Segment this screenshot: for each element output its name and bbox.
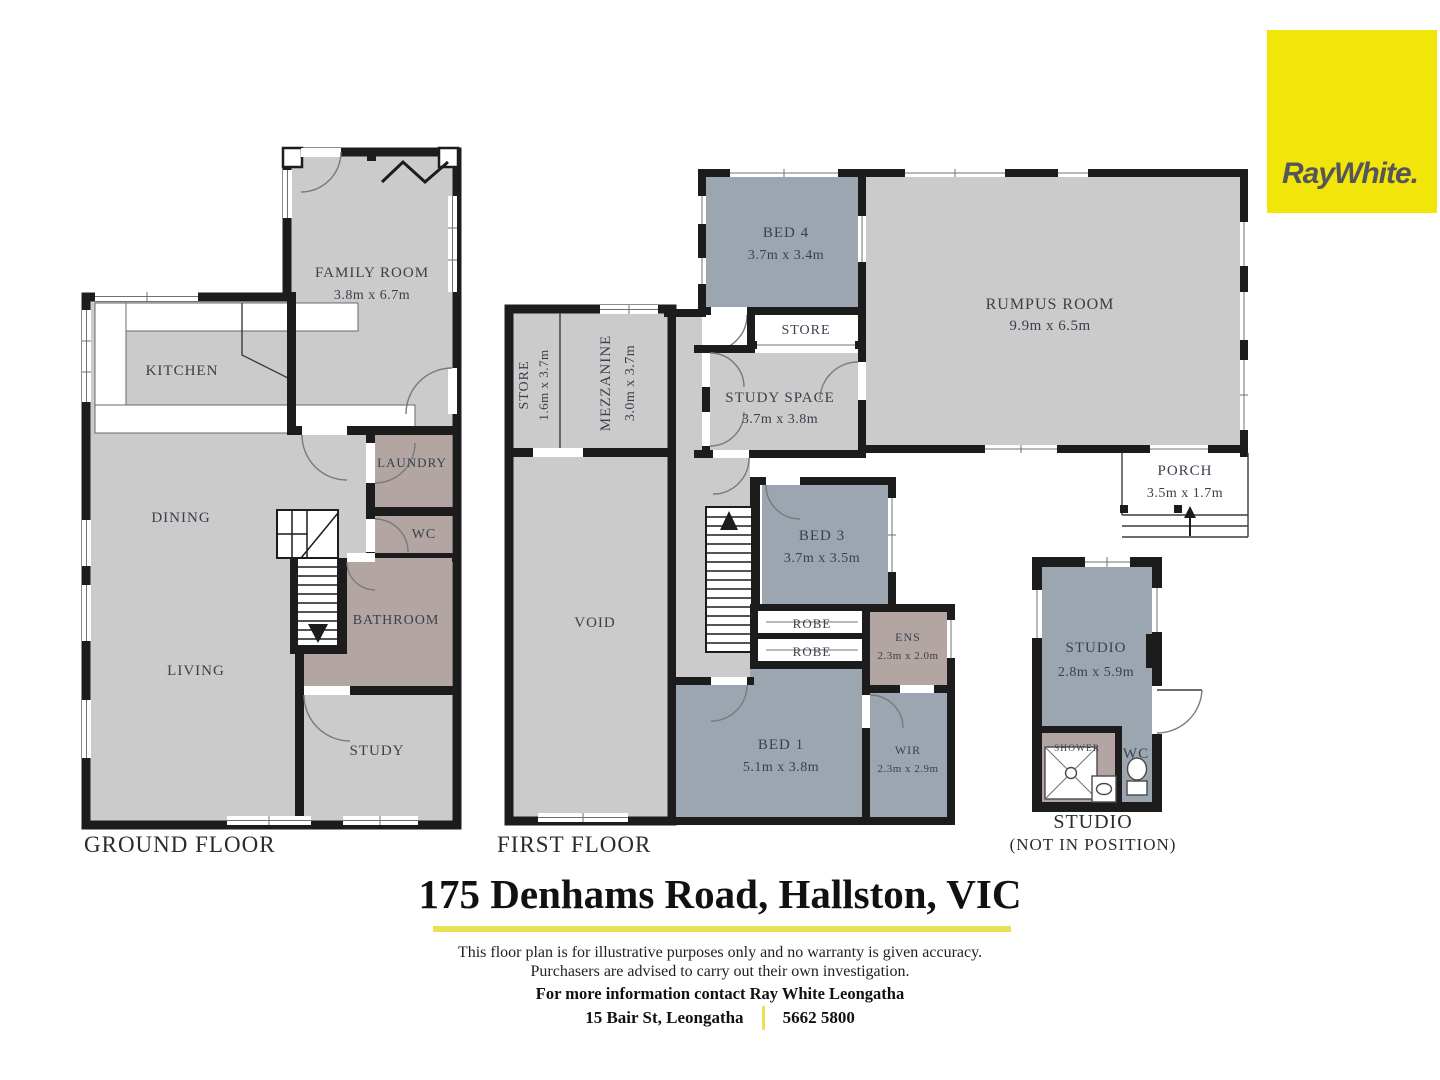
- label-robe2: ROBE: [793, 644, 832, 659]
- label-wir: WIR: [895, 743, 921, 757]
- label-family-room: FAMILY ROOM: [315, 265, 429, 281]
- label-studio-wc: WC: [1123, 746, 1149, 762]
- dims-wir: 2.3m x 2.9m: [877, 763, 938, 775]
- studio-caption-line2: (NOT IN POSITION): [1010, 835, 1177, 854]
- dims-bed3: 3.7m x 3.5m: [784, 551, 860, 566]
- dims-family-room: 3.8m x 6.7m: [334, 288, 410, 303]
- label-living: LIVING: [167, 663, 225, 679]
- address-title: 175 Denhams Road, Hallston, VIC: [0, 870, 1440, 918]
- dims-store-tall: 1.6m x 3.7m: [536, 349, 551, 420]
- porch-entry-arrow-icon: [1184, 506, 1196, 518]
- dims-ens: 2.3m x 2.0m: [877, 650, 938, 662]
- contact-line: For more information contact Ray White L…: [0, 984, 1440, 1004]
- contact-divider: [762, 1006, 765, 1030]
- dims-mezzanine: 3.0m x 3.7m: [623, 345, 638, 421]
- label-store-tall: STORE: [517, 360, 532, 409]
- label-bed1: BED 1: [758, 737, 804, 753]
- title-underline: [433, 926, 1011, 932]
- raywhite-logo-text: RayWhite.: [1282, 157, 1418, 191]
- label-kitchen: KITCHEN: [146, 363, 219, 379]
- ground-floor-plan: KITCHEN FAMILY ROOM 3.8m x 6.7m LAUNDRY …: [82, 148, 458, 857]
- staircase-up: [706, 507, 752, 652]
- floorplan-page: KITCHEN FAMILY ROOM 3.8m x 6.7m LAUNDRY …: [0, 0, 1440, 1080]
- label-wc: WC: [412, 527, 437, 542]
- dims-study-space: 3.7m x 3.8m: [742, 412, 818, 427]
- floorplan-drawing: KITCHEN FAMILY ROOM 3.8m x 6.7m LAUNDRY …: [0, 0, 1440, 1080]
- room-laundry: [374, 435, 452, 510]
- door-arc: [1157, 690, 1202, 733]
- post-icon: [439, 148, 458, 167]
- ground-floor-title: GROUND FLOOR: [84, 832, 276, 857]
- label-robe1: ROBE: [793, 616, 832, 631]
- label-ens: ENS: [895, 630, 921, 644]
- dims-studio: 2.8m x 5.9m: [1058, 665, 1134, 680]
- label-laundry: LAUNDRY: [377, 455, 447, 470]
- disclaimer-line1: This floor plan is for illustrative purp…: [0, 944, 1440, 962]
- label-store: STORE: [781, 323, 830, 338]
- dims-bed1: 5.1m x 3.8m: [743, 760, 819, 775]
- label-porch: PORCH: [1157, 463, 1212, 479]
- room-ens: [870, 612, 947, 685]
- label-rumpus: RUMPUS ROOM: [986, 296, 1115, 313]
- label-bed4: BED 4: [763, 225, 809, 241]
- office-contact-row: 15 Bair St, Leongatha 5662 5800: [0, 1006, 1440, 1030]
- dims-bed4: 3.7m x 3.4m: [748, 248, 824, 263]
- sink-icon: [1092, 776, 1116, 802]
- label-dining: DINING: [151, 510, 210, 526]
- label-bed3: BED 3: [799, 528, 845, 544]
- raywhite-logo: RayWhite.: [1267, 30, 1437, 213]
- disclaimer-line2: Purchasers are advised to carry out thei…: [0, 963, 1440, 981]
- post-icon: [283, 148, 302, 167]
- dims-porch: 3.5m x 1.7m: [1147, 486, 1223, 501]
- label-studio: STUDIO: [1066, 640, 1127, 656]
- shower-tray-icon: [1045, 747, 1097, 799]
- label-bathroom: BATHROOM: [353, 613, 440, 628]
- room-bed3: [762, 485, 888, 604]
- label-shower: SHOWER: [1054, 744, 1100, 754]
- office-phone: 5662 5800: [783, 1008, 855, 1028]
- label-study: STUDY: [349, 743, 404, 759]
- first-floor-title: FIRST FLOOR: [497, 832, 651, 857]
- dims-rumpus: 9.9m x 6.5m: [1009, 318, 1090, 334]
- studio-caption-line1: STUDIO: [1053, 811, 1132, 833]
- office-address: 15 Bair St, Leongatha: [585, 1008, 743, 1028]
- studio-plan: STUDIO 2.8m x 5.9m SHOWER WC STUDIO (NOT…: [1010, 557, 1202, 854]
- label-study-space: STUDY SPACE: [725, 390, 835, 406]
- label-mezzanine: MEZZANINE: [598, 335, 614, 431]
- label-void: VOID: [574, 615, 616, 631]
- room-bed4: [706, 177, 858, 307]
- toilet-icon: [1127, 758, 1147, 795]
